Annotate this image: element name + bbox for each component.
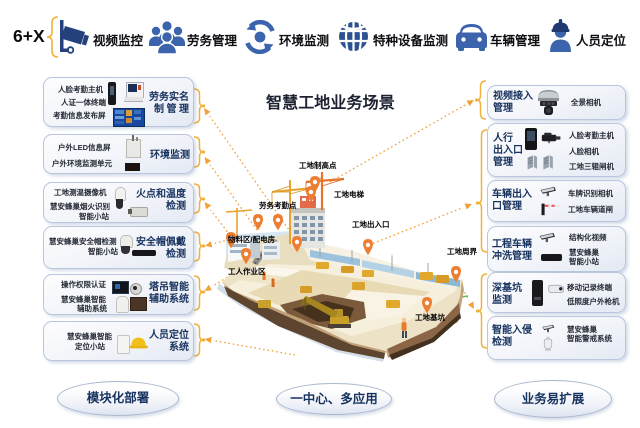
svg-text:物料区/配电房: 物料区/配电房 [228,234,276,244]
svg-text:工地周界: 工地周界 [447,246,477,256]
svg-text:工人作业区: 工人作业区 [228,266,266,276]
svg-text:工地出入口: 工地出入口 [352,219,390,229]
svg-text:工地制高点: 工地制高点 [299,160,337,170]
svg-text:工地电梯: 工地电梯 [334,189,364,199]
svg-text:劳务考勤点: 劳务考勤点 [259,200,297,210]
svg-text:工地基坑: 工地基坑 [415,312,445,322]
